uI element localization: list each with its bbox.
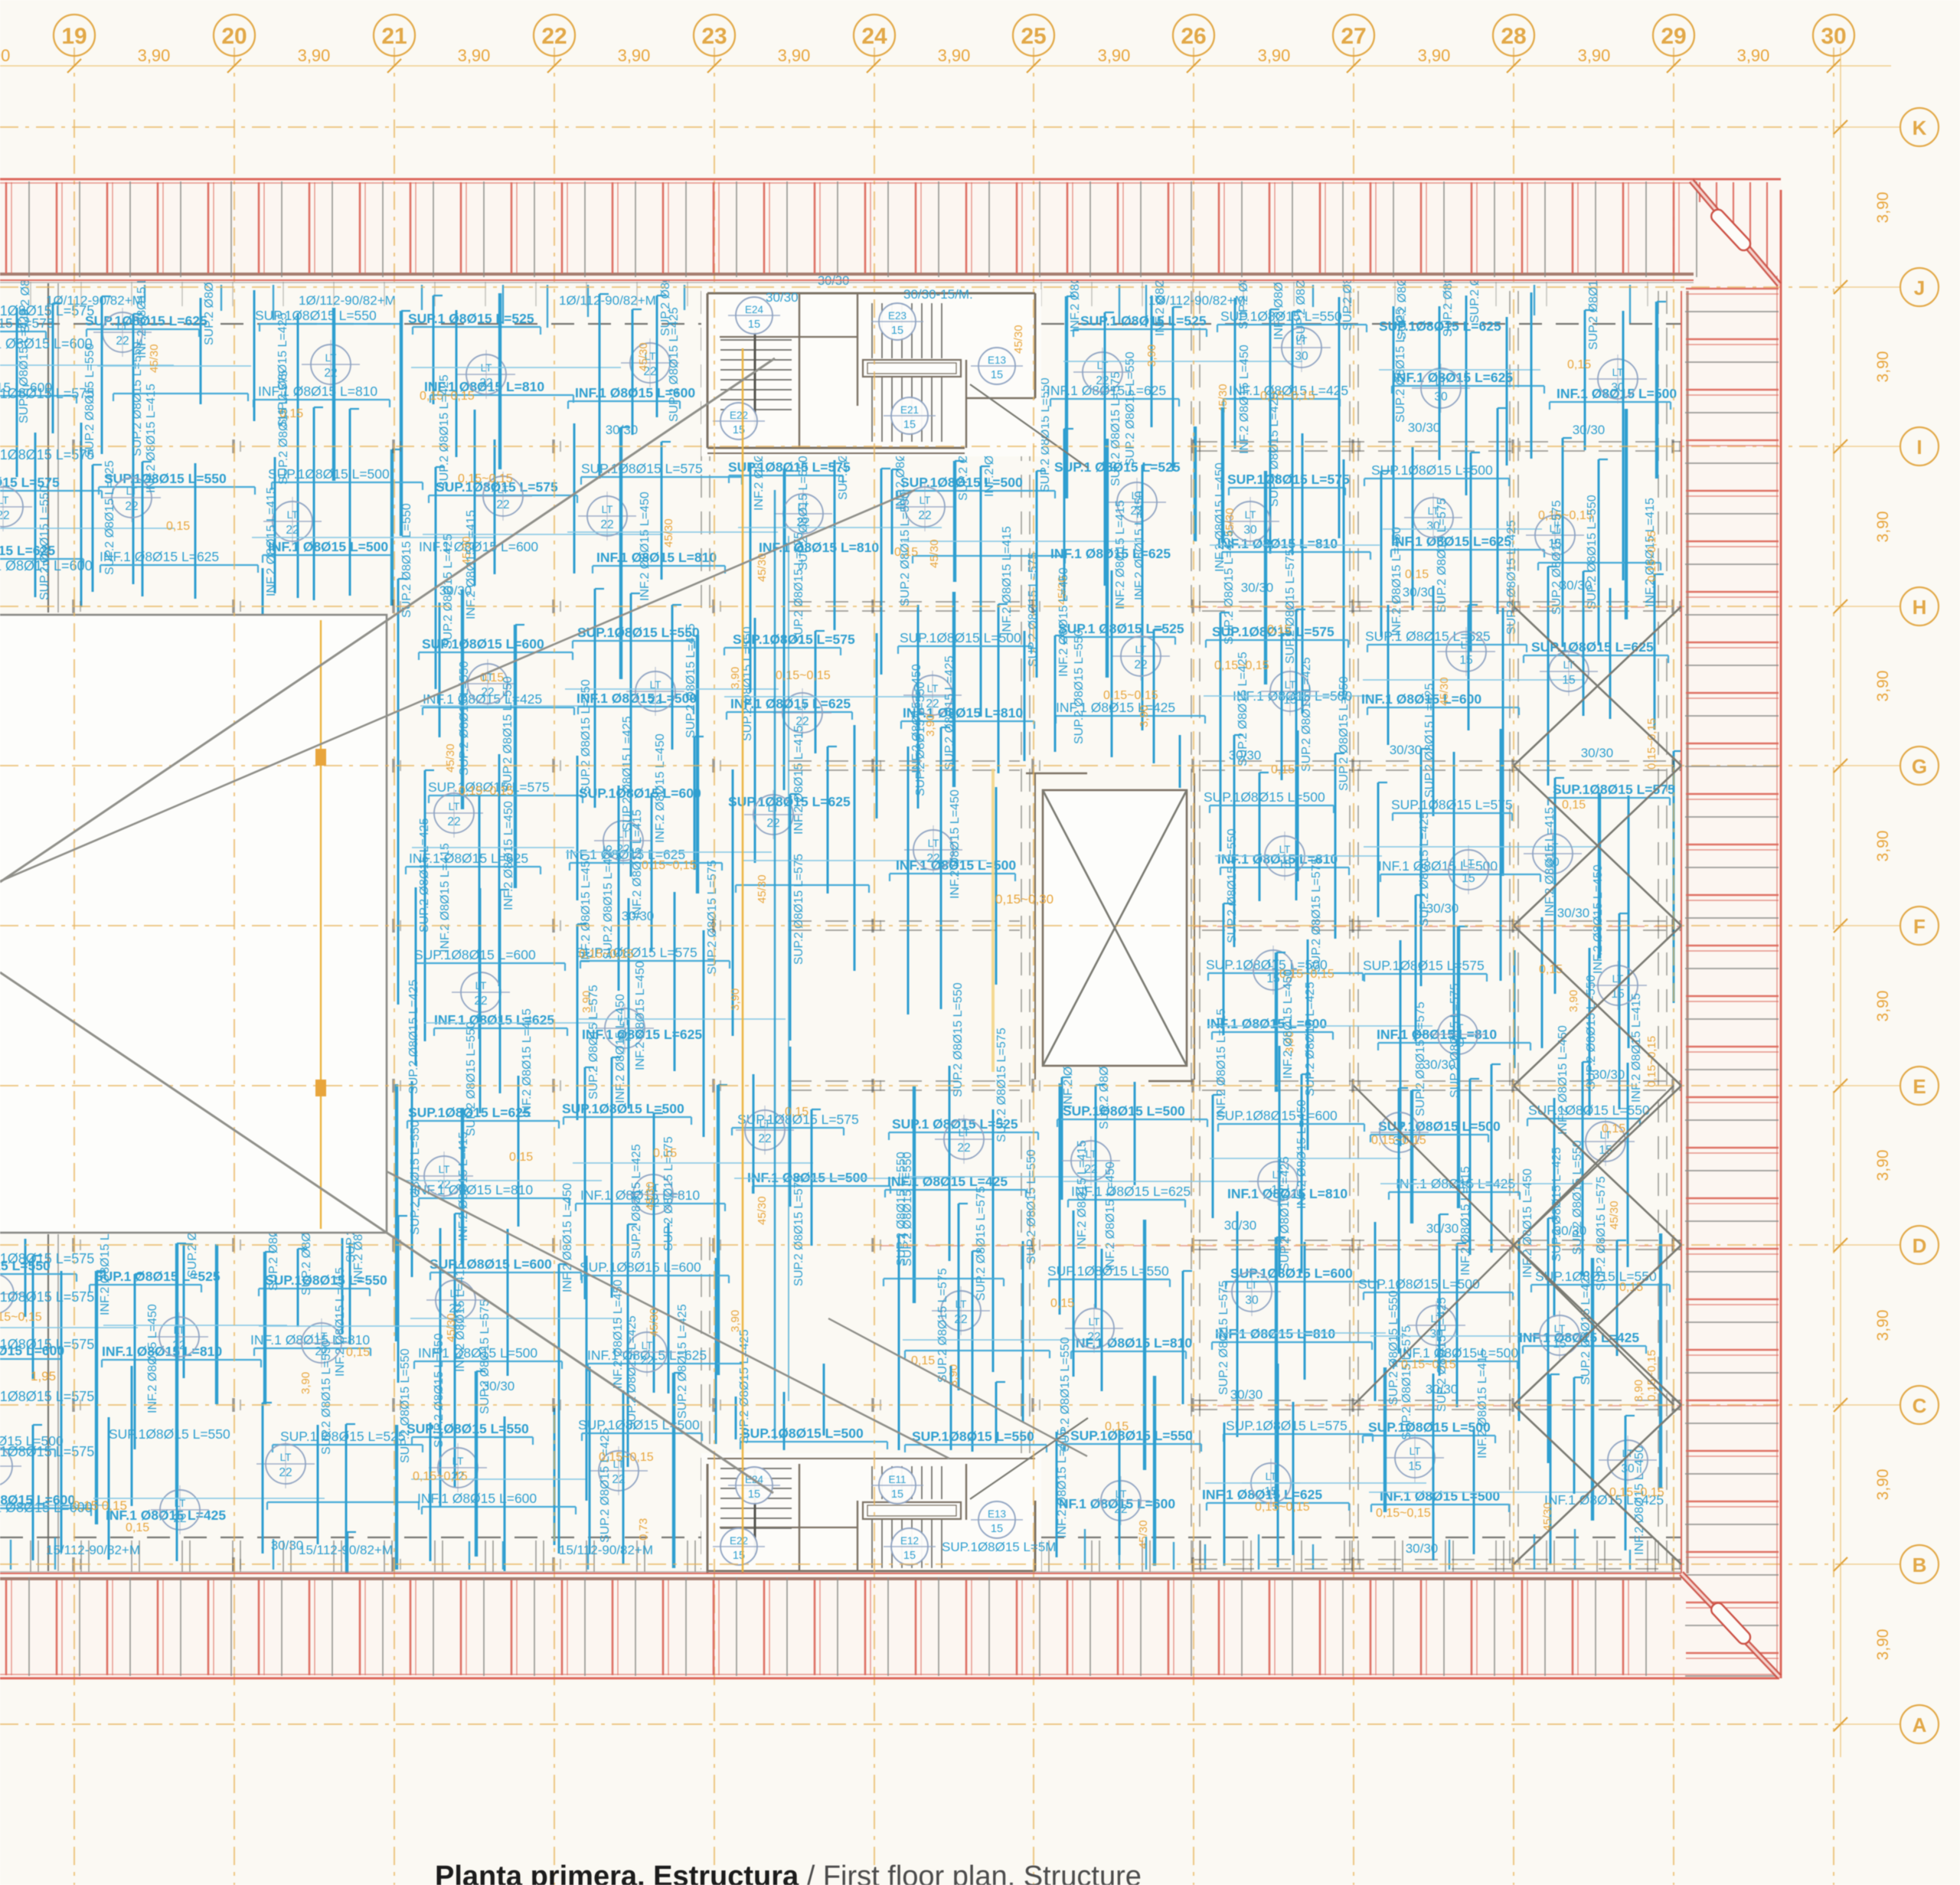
svg-text:LT: LT [1116,1488,1127,1500]
svg-text:INF.1 Ø8Ø15 L=810: INF.1 Ø8Ø15 L=810 [596,550,717,565]
svg-text:LT: LT [1089,1316,1100,1328]
svg-text:SUP.1Ø8Ø15 L=575: SUP.1Ø8Ø15 L=575 [0,1337,94,1352]
svg-text:22: 22 [447,815,460,828]
svg-text:SUP.2 Ø8Ø15 L=425: SUP.2 Ø8Ø15 L=425 [418,818,431,933]
svg-text:0,15~0,15: 0,15~0,15 [1645,1350,1658,1401]
svg-text:30: 30 [1295,350,1308,363]
svg-text:SUP.2 Ø8Ø15 L=550: SUP.2 Ø8Ø15 L=550 [580,679,593,794]
svg-text:SUP.2 Ø8Ø15 L=575: SUP.2 Ø8Ø15 L=575 [792,854,805,965]
svg-text:INF.1 Ø8Ø15 L=625: INF.1 Ø8Ø15 L=625 [1071,1184,1191,1199]
svg-text:SUP.2 Ø8Ø15 L=425: SUP.2 Ø8Ø15 L=425 [1268,392,1281,507]
svg-text:SUP.2 Ø8Ø15 L=425: SUP.2 Ø8Ø15 L=425 [599,1428,612,1543]
svg-text:0,15~0,15: 0,15~0,15 [1609,1486,1664,1499]
svg-text:30: 30 [1245,1294,1259,1307]
svg-text:0,15~0,15: 0,15~0,15 [413,1470,468,1483]
svg-text:0,15: 0,15 [346,1346,370,1359]
svg-text:SUP.2 Ø8Ø15 L=425: SUP.2 Ø8Ø15 L=425 [442,534,455,648]
svg-text:22: 22 [954,1313,967,1326]
svg-text:22: 22 [648,694,661,707]
svg-text:LT: LT [959,1127,970,1139]
svg-text:SUP.1Ø8Ø15 L=575: SUP.1Ø8Ø15 L=575 [0,386,94,401]
svg-text:INF.2 Ø8Ø15 L=450: INF.2 Ø8Ø15 L=450 [1104,1161,1117,1271]
svg-text:15/112-90/82+M: 15/112-90/82+M [299,1543,393,1557]
svg-text:SUP.2 Ø8Ø15 L=550: SUP.2 Ø8Ø15 L=550 [1338,676,1351,791]
svg-text:SUP.1Ø8Ø15 L=500: SUP.1Ø8Ø15 L=500 [1358,1276,1480,1292]
svg-text:45/30: 45/30 [1438,677,1451,706]
svg-text:15: 15 [1459,654,1472,667]
svg-text:SUP.1Ø8Ø15 L=550: SUP.1Ø8Ø15 L=550 [407,1421,529,1436]
svg-text:0,15: 0,15 [1567,358,1591,371]
svg-text:15/112-90/82+M: 15/112-90/82+M [559,1543,653,1557]
svg-text:30/30: 30/30 [1426,901,1459,916]
svg-text:3,90: 3,90 [1874,351,1892,383]
svg-text:1,95: 1,95 [31,1369,56,1384]
svg-text:SUP.2 Ø8Ø15 L=575: SUP.2 Ø8Ø15 L=575 [792,532,805,643]
svg-text:45/30: 45/30 [928,539,941,568]
svg-text:15: 15 [903,1550,916,1562]
svg-text:INF.2 Ø8Ø15 L=415: INF.2 Ø8Ø15 L=415 [792,725,805,835]
svg-text:INF.2 Ø8Ø15 L=450: INF.2 Ø8Ø15 L=450 [1238,345,1251,454]
svg-text:INF.2 Ø8Ø15 L=415: INF.2 Ø8Ø15 L=415 [439,843,452,952]
svg-text:SUP.2 Ø8Ø15 L=575: SUP.2 Ø8Ø15 L=575 [1436,498,1449,613]
svg-text:SUP.2 Ø8Ø15 L=550: SUP.2 Ø8Ø15 L=550 [465,1021,478,1136]
svg-text:SUP.1Ø8Ø15 L=600: SUP.1Ø8Ø15 L=600 [580,1259,701,1275]
svg-text:22: 22 [1087,1331,1100,1344]
svg-text:SUP.1Ø8Ø15 L=575: SUP.1Ø8Ø15 L=575 [0,1289,94,1305]
svg-text:INF.2 Ø8Ø15 L=415: INF.2 Ø8Ø15 L=415 [457,1132,470,1241]
svg-text:SUP.2 Ø8Ø15 L=575: SUP.2 Ø8Ø15 L=575 [1414,1001,1427,1116]
svg-text:INF.1 Ø8Ø15 L=500: INF.1 Ø8Ø15 L=500 [1378,858,1498,874]
svg-text:C: C [1913,1394,1927,1417]
svg-text:22: 22 [172,1339,185,1352]
svg-text:SUP.2 Ø8Ø15 L=425: SUP.2 Ø8Ø15 L=425 [1436,1297,1449,1412]
svg-text:SUP.1Ø8Ø15 L=575: SUP.1Ø8Ø15 L=575 [1391,797,1513,812]
svg-text:30/30: 30/30 [1406,1541,1439,1556]
svg-text:SUP.2 Ø8Ø15 L=550: SUP.2 Ø8Ø15 L=550 [433,1333,446,1448]
svg-text:INF.2 Ø8Ø15 L=415: INF.2 Ø8Ø15 L=415 [1543,807,1557,916]
svg-text:INF.1 Ø8Ø15 L=625: INF.1 Ø8Ø15 L=625 [1391,534,1511,549]
svg-text:3,90: 3,90 [1874,991,1892,1022]
svg-text:E11: E11 [888,1474,906,1485]
svg-text:SUP.2 Ø8Ø15 L=425: SUP.2 Ø8Ø15 L=425 [1418,812,1431,926]
svg-text:SUP.2 Ø8Ø15 L=575: SUP.2 Ø8Ø15 L=575 [975,1186,988,1301]
svg-text:INF.2 Ø8Ø15 L=450: INF.2 Ø8Ø15 L=450 [614,994,627,1103]
svg-text:LT: LT [1245,509,1256,521]
svg-text:SUP.1 Ø8Ø15 L=525: SUP.1 Ø8Ø15 L=525 [280,1429,406,1444]
svg-text:30/30: 30/30 [1408,420,1441,435]
svg-text:LT: LT [1436,376,1447,387]
svg-text:30/30: 30/30 [1423,1057,1456,1072]
svg-text:0,15~0,15: 0,15~0,15 [1255,1501,1310,1514]
svg-text:22: 22 [957,1142,970,1155]
svg-text:SUP.1 Ø8Ø15 L=525: SUP.1 Ø8Ø15 L=525 [1080,313,1207,328]
svg-text:22: 22 [286,524,299,537]
svg-text:E23: E23 [888,310,906,322]
svg-text:INF.2 Ø8Ø15 L=415: INF.2 Ø8Ø15 L=415 [1001,526,1014,635]
svg-text:1Ø/112-90/82+M: 1Ø/112-90/82+M [1148,293,1246,308]
svg-text:LT: LT [280,1452,292,1463]
svg-text:SUP.2 Ø8Ø15 L=575: SUP.2 Ø8Ø15 L=575 [792,1175,805,1286]
svg-text:26: 26 [1181,24,1206,49]
svg-text:INF.2 Ø8Ø15 L=415: INF.2 Ø8Ø15 L=415 [334,1267,347,1377]
svg-text:0,15~0,15: 0,15~0,15 [1214,659,1269,672]
svg-text:22: 22 [926,697,939,711]
svg-text:E21: E21 [900,404,919,416]
svg-text:LT: LT [1612,367,1624,378]
svg-text:INF.2 Ø8Ø15 L=415: INF.2 Ø8Ø15 L=415 [265,487,278,596]
svg-text:LT: LT [642,1340,653,1351]
svg-text:INF.2 Ø8Ø15 L=450: INF.2 Ø8Ø15 L=450 [1057,567,1070,677]
svg-text:SUP.1Ø8Ø15 L=600: SUP.1Ø8Ø15 L=600 [1216,1108,1338,1123]
svg-text:3,90: 3,90 [1874,1310,1892,1341]
svg-text:LT: LT [287,509,299,521]
svg-text:30/30: 30/30 [766,290,799,305]
svg-text:K: K [1913,116,1927,139]
svg-text:SUP.2 Ø8Ø15 L=550: SUP.2 Ø8Ø15 L=550 [1124,351,1137,466]
svg-text:INF.1 Ø8Ø15 L=625: INF.1 Ø8Ø15 L=625 [1202,1487,1322,1502]
svg-text:20: 20 [221,24,247,49]
svg-text:SUP.2 Ø8Ø15 L=575: SUP.2 Ø8Ø15 L=575 [1310,858,1323,972]
svg-text:INF.1 Ø8Ø15 L=810: INF.1 Ø8Ø15 L=810 [250,1332,370,1348]
svg-text:3,90: 3,90 [729,667,742,689]
svg-text:15: 15 [1408,1460,1421,1473]
svg-text:INF.2 Ø8Ø15 L=450: INF.2 Ø8Ø15 L=450 [1633,1446,1646,1555]
svg-text:LT: LT [1279,844,1291,855]
svg-text:22: 22 [125,500,138,513]
svg-text:J: J [1914,276,1925,299]
svg-text:SUP.1Ø8Ø15 L=600: SUP.1Ø8Ø15 L=600 [430,1256,552,1272]
svg-text:E13: E13 [988,354,1006,366]
svg-text:3,90: 3,90 [1874,1629,1892,1661]
svg-text:3,90: 3,90 [778,46,811,65]
svg-text:25: 25 [1021,24,1046,49]
svg-text:45/30: 45/30 [148,344,161,373]
svg-text:3,90: 3,90 [458,46,491,65]
svg-text:SUP.1Ø8Ø15 L=575: SUP.1Ø8Ø15 L=575 [0,1251,94,1266]
svg-text:LT: LT [439,1164,450,1175]
svg-text:SUP.1Ø8Ø15 L=575: SUP.1Ø8Ø15 L=575 [0,1389,94,1404]
svg-text:F: F [1913,915,1926,938]
svg-text:INF.1 Ø8Ø15 L=600: INF.1 Ø8Ø15 L=600 [1361,691,1481,707]
svg-text:30/30: 30/30 [1573,423,1606,437]
svg-text:SUP.1Ø8Ø15 L=500: SUP.1Ø8Ø15 L=500 [741,1426,864,1441]
svg-text:LT: LT [768,802,779,814]
svg-text:SUP.2 Ø8Ø15 L=575: SUP.2 Ø8Ø15 L=575 [1109,371,1122,486]
svg-text:0,15~0,15: 0,15~0,15 [458,472,513,485]
svg-text:0,15: 0,15 [509,1151,533,1164]
svg-text:INF.1 Ø8Ø15 L=600: INF.1 Ø8Ø15 L=600 [0,558,93,573]
svg-text:INF.2 Ø8Ø15 L=450: INF.2 Ø8Ø15 L=450 [1282,969,1295,1079]
svg-text:SUP.2 Ø8Ø15 L=425: SUP.2 Ø8Ø15 L=425 [630,1144,643,1259]
svg-text:SUP.2 Ø8Ø15 L=425: SUP.2 Ø8Ø15 L=425 [668,307,681,422]
svg-text:INF.1 Ø8Ø15 L=625: INF.1 Ø8Ø15 L=625 [1050,546,1171,561]
svg-text:Planta primera, Estructura / F: Planta primera, Estructura / First floor… [435,1860,1142,1885]
svg-text:LT: LT [1554,1323,1566,1335]
svg-text:INF.2 Ø8Ø15 L=450: INF.2 Ø8Ø15 L=450 [639,492,652,601]
svg-text:SUP.1Ø8Ø15 L=500: SUP.1Ø8Ø15 L=500 [1063,1103,1185,1119]
svg-text:22: 22 [496,498,509,511]
svg-text:22: 22 [479,377,492,390]
svg-text:45/30: 45/30 [644,1181,657,1210]
svg-text:LT: LT [449,801,460,812]
svg-text:0,15 0,15: 0,15 0,15 [73,1498,127,1513]
svg-text:30/30: 30/30 [1224,1218,1257,1233]
svg-text:SUP.2 Ø8Ø15 L=575: SUP.2 Ø8Ø15 L=575 [1550,500,1563,615]
svg-text:0,15: 0,15 [1562,799,1586,812]
svg-text:SUP.2 Ø8Ø15 L=550: SUP.2 Ø8Ø15 L=550 [901,1152,914,1266]
svg-text:SUP.1Ø8Ø15 L=550: SUP.1Ø8Ø15 L=550 [265,1272,387,1288]
svg-text:SUP.2 Ø8Ø15 L=425: SUP.2 Ø8Ø15 L=425 [626,1315,639,1430]
svg-text:SUP.1Ø8Ø15 L=575: SUP.1Ø8Ø15 L=575 [1227,472,1350,487]
svg-text:24: 24 [861,24,887,49]
svg-text:SUP.2 Ø8Ø15 L=425: SUP.2 Ø8Ø15 L=425 [18,309,31,423]
svg-text:3,90: 3,90 [618,46,651,65]
svg-text:SUP.2 Ø8Ø15 L=425: SUP.2 Ø8Ø15 L=425 [103,460,116,575]
svg-text:INF.1 Ø8Ø15 L=500: INF.1 Ø8Ø15 L=500 [1380,1488,1500,1504]
svg-text:30: 30 [1243,524,1257,537]
svg-text:22: 22 [0,509,10,522]
svg-text:INF.2 Ø8Ø15 L=450: INF.2 Ø8Ø15 L=450 [561,1183,574,1292]
svg-text:SUP.2 Ø8Ø15 L=550: SUP.2 Ø8Ø15 L=550 [131,341,144,456]
svg-text:INF.2 Ø8Ø15 L=415: INF.2 Ø8Ø15 L=415 [1114,500,1127,609]
svg-text:3,90: 3,90 [0,46,10,65]
svg-text:SUP.2 Ø8Ø15 L=550: SUP.2 Ø8Ø15 L=550 [1586,495,1599,609]
svg-text:0,15~0,15: 0,15~0,15 [1538,509,1593,522]
svg-text:0,15: 0,15 [1105,1420,1129,1433]
svg-text:LT: LT [1461,639,1472,651]
svg-text:SUP.2 Ø8Ø15 L=550: SUP.2 Ø8Ø15 L=550 [1387,1290,1400,1405]
svg-text:15: 15 [891,1488,903,1501]
svg-text:30/30: 30/30 [1390,743,1423,757]
svg-text:E22: E22 [730,1535,748,1547]
svg-text:INF.1 Ø8Ø15 L=625: INF.1 Ø8Ø15 L=625 [100,549,219,564]
svg-text:45/30: 45/30 [637,342,650,371]
svg-text:0,15~0,15: 0,15~0,15 [0,1311,42,1324]
svg-text:SUP.2 Ø8Ø15 L=575: SUP.2 Ø8Ø15 L=575 [587,985,600,1099]
svg-text:LT: LT [797,701,808,712]
svg-text:22: 22 [279,1466,292,1479]
svg-text:SUP.1Ø8Ø15 L=575: SUP.1Ø8Ø15 L=575 [1226,1418,1347,1433]
svg-text:INF.2 Ø8Ø15 L=415: INF.2 Ø8Ø15 L=415 [631,809,644,919]
svg-text:45/30: 45/30 [648,1308,661,1337]
svg-text:15: 15 [1278,858,1291,871]
svg-text:0,15: 0,15 [911,1354,935,1367]
svg-text:INF.2 Ø8Ø15 L=450: INF.2 Ø8Ø15 L=450 [654,733,667,843]
svg-text:3,90: 3,90 [1874,671,1892,702]
svg-text:22: 22 [640,1354,653,1367]
svg-text:15: 15 [991,369,1003,381]
svg-text:SUP.2 Ø8Ø15 L=550: SUP.2 Ø8Ø15 L=550 [400,503,413,618]
svg-text:0,15: 0,15 [1405,568,1429,581]
svg-text:3,90: 3,90 [1874,1469,1892,1501]
svg-text:3,90: 3,90 [1874,192,1892,224]
svg-text:INF.2 Ø8Ø15 L=415: INF.2 Ø8Ø15 L=415 [1476,1349,1489,1459]
svg-text:D: D [1913,1234,1927,1257]
svg-text:22: 22 [918,509,931,522]
svg-text:SUP.1Ø8Ø15 L=575: SUP.1Ø8Ø15 L=575 [0,447,94,462]
svg-text:LT: LT [126,485,138,497]
svg-text:3,90: 3,90 [1874,1150,1892,1181]
svg-text:22: 22 [116,335,129,348]
svg-text:30/30: 30/30 [1557,906,1590,920]
svg-text:LT: LT [1246,1279,1258,1291]
svg-text:30/30: 30/30 [1403,585,1436,599]
svg-text:0,15: 0,15 [653,1147,677,1160]
svg-text:LT: LT [0,495,8,506]
svg-text:15: 15 [748,1488,760,1501]
svg-text:SUP.1Ø8Ø15 L=5M: SUP.1Ø8Ø15 L=5M [942,1540,1056,1554]
svg-text:SUP.2 Ø8Ø15 L=425: SUP.2 Ø8Ø15 L=425 [943,655,956,770]
svg-text:SUP.2 Ø8Ø15 L=425: SUP.2 Ø8Ø15 L=425 [1304,982,1317,1096]
svg-text:0,15: 0,15 [1267,623,1291,636]
svg-text:INF.2 Ø8Ø15 L=415: INF.2 Ø8Ø15 L=415 [521,1008,534,1118]
svg-text:SUP.1Ø8Ø15 L=575: SUP.1Ø8Ø15 L=575 [728,459,851,475]
svg-text:22: 22 [766,817,779,830]
svg-text:0,15: 0,15 [126,1521,149,1534]
svg-text:0,15: 0,15 [1602,1122,1625,1135]
svg-text:SUP.2 Ø8Ø15 L=575: SUP.2 Ø8Ø15 L=575 [1595,1176,1608,1291]
svg-text:INF.2 Ø8Ø15 L=450: INF.2 Ø8Ø15 L=450 [146,1304,159,1413]
svg-text:SUP.2 Ø8Ø15 L=425: SUP.2 Ø8Ø15 L=425 [1579,1270,1592,1385]
svg-text:15: 15 [1553,1338,1566,1351]
svg-text:INF.2 Ø8Ø15 L=450: INF.2 Ø8Ø15 L=450 [634,961,647,1070]
svg-text:SUP.2 Ø8Ø15 L=425: SUP.2 Ø8Ø15 L=425 [407,979,420,1094]
svg-text:19: 19 [61,24,87,49]
svg-text:A: A [1913,1713,1927,1736]
svg-text:LT: LT [1410,1446,1421,1457]
svg-text:3,90: 3,90 [1567,990,1580,1012]
svg-text:45/30: 45/30 [1608,1201,1621,1230]
svg-text:SUP.2 Ø8Ø15 L=550: SUP.2 Ø8Ø15 L=550 [1585,975,1598,1090]
svg-text:22: 22 [173,1512,186,1525]
svg-text:45/30: 45/30 [445,1313,458,1342]
svg-text:0,15~0,15: 0,15~0,15 [1371,1134,1426,1147]
svg-text:SUP.1 Ø8Ø15 L=525: SUP.1 Ø8Ø15 L=525 [408,311,534,326]
svg-text:0,15~0,15: 0,15~0,15 [642,859,697,872]
svg-text:SUP.2 Ø8Ø15 L=575: SUP.2 Ø8Ø15 L=575 [277,370,290,485]
svg-text:SUP.2 Ø8Ø15 L=575: SUP.2 Ø8Ø15 L=575 [706,860,719,975]
svg-text:SUP.2 Ø8Ø15 L=550: SUP.2 Ø8Ø15 L=550 [952,982,965,1097]
svg-text:30: 30 [1434,390,1448,403]
svg-text:1Ø/112-90/82+M: 1Ø/112-90/82+M [559,293,656,308]
svg-text:30/30: 30/30 [1581,746,1614,760]
svg-text:INF.2 Ø8Ø15 L=450: INF.2 Ø8Ø15 L=450 [1295,1099,1308,1209]
svg-text:27: 27 [1341,24,1366,49]
svg-text:3,90: 3,90 [938,46,971,65]
svg-text:3,90: 3,90 [299,1372,312,1394]
svg-text:0,15: 0,15 [1050,1297,1074,1310]
svg-text:22: 22 [926,852,939,865]
svg-text:LT: LT [927,683,939,694]
svg-text:0,15~0,15: 0,15~0,15 [579,948,634,961]
svg-text:0,15~0,15: 0,15~0,15 [1645,531,1658,582]
svg-text:45/30: 45/30 [756,874,769,903]
svg-text:22: 22 [1114,1503,1127,1516]
svg-text:LT: LT [1463,858,1475,869]
svg-text:E22: E22 [730,410,748,421]
svg-text:SUP.1Ø8Ø15 L=550: SUP.1Ø8Ø15 L=550 [104,471,227,486]
svg-text:0,15~0,15: 0,15~0,15 [1103,689,1158,702]
svg-text:SUP.1Ø8Ø15 L=500: SUP.1Ø8Ø15 L=500 [1204,789,1325,805]
svg-text:SUP.1Ø8Ø15 L=550: SUP.1Ø8Ø15 L=550 [109,1426,230,1442]
svg-text:INF.2 Ø8Ø15 L=450: INF.2 Ø8Ø15 L=450 [612,1279,625,1389]
svg-text:0,15: 0,15 [166,520,190,533]
svg-text:3,90: 3,90 [1145,345,1158,367]
svg-text:INF.2 Ø8Ø15 L=450: INF.2 Ø8Ø15 L=450 [949,789,962,899]
svg-text:SUP.2 Ø8Ø15 L=425: SUP.2 Ø8Ø15 L=425 [1423,683,1436,798]
svg-text:LT: LT [955,1299,967,1310]
svg-text:15: 15 [891,325,903,337]
svg-text:SUP.2 Ø8Ø15 L=425: SUP.2 Ø8Ø15 L=425 [1279,1156,1292,1271]
svg-text:INF.2 Ø8Ø15 L=415: INF.2 Ø8Ø15 L=415 [1215,1008,1228,1118]
svg-text:SUP.2 Ø8Ø15 L=550: SUP.2 Ø8Ø15 L=550 [458,661,471,776]
svg-text:22: 22 [541,24,567,49]
svg-text:1Ø/112-90/82+M: 1Ø/112-90/82+M [299,293,396,308]
svg-text:LT: LT [1266,1471,1277,1482]
svg-text:22: 22 [758,1132,771,1145]
svg-text:B: B [1913,1553,1927,1576]
svg-text:3,90: 3,90 [1874,511,1892,543]
svg-text:INF.2 Ø8Ø15 L=450: INF.2 Ø8Ø15 L=450 [910,664,923,773]
svg-text:INF.1 Ø8Ø15 L=625: INF.1 Ø8Ø15 L=625 [434,1012,554,1027]
svg-text:LT: LT [1622,1448,1634,1459]
svg-text:0,15~0,15: 0,15~0,15 [599,1451,654,1464]
svg-text:SUP.1Ø8Ø15 L=600: SUP.1Ø8Ø15 L=600 [579,786,701,801]
svg-text:15: 15 [748,319,760,331]
svg-text:LT: LT [602,504,613,515]
svg-text:3,90: 3,90 [1418,46,1451,65]
svg-text:0,15: 0,15 [894,546,918,559]
svg-text:SUP.2 Ø8Ø15 L=425: SUP.2 Ø8Ø15 L=425 [1394,308,1407,423]
svg-text:3,90: 3,90 [298,46,331,65]
svg-text:INF.1 Ø8Ø15 L=810: INF.1 Ø8Ø15 L=810 [759,540,879,555]
svg-text:SUP.2 Ø8Ø15 L=425: SUP.2 Ø8Ø15 L=425 [738,1329,751,1444]
svg-text:1Ø/112-90/82+M: 1Ø/112-90/82+M [46,293,143,308]
svg-text:LT: LT [928,838,939,849]
svg-text:INF.2 Ø8Ø15 L=450: INF.2 Ø8Ø15 L=450 [502,801,515,910]
svg-text:15: 15 [991,1523,1003,1535]
svg-text:INF.2 Ø8Ø15 L=415: INF.2 Ø8Ø15 L=415 [145,384,158,493]
svg-text:45/30: 45/30 [444,743,457,773]
svg-text:3,90: 3,90 [1632,1380,1645,1402]
svg-text:LT: LT [452,1455,464,1467]
svg-text:0,15~0,15: 0,15~0,15 [459,785,514,798]
svg-text:INF.1 Ø8Ø15 L=500: INF.1 Ø8Ø15 L=500 [268,539,388,554]
svg-text:22: 22 [1096,374,1109,387]
svg-text:0,73: 0,73 [637,1518,650,1540]
svg-text:SUP.2 Ø8Ø15 L=425: SUP.2 Ø8Ø15 L=425 [602,844,615,959]
svg-text:45/30: 45/30 [1012,325,1025,354]
svg-text:3,90: 3,90 [1258,46,1291,65]
svg-text:LT: LT [117,320,129,332]
svg-text:SUP.1Ø8Ø15 L=550: SUP.1Ø8Ø15 L=550 [912,1429,1034,1444]
svg-text:SUP.2 Ø8Ø15 L=550: SUP.2 Ø8Ø15 L=550 [501,676,514,791]
svg-text:30/30: 30/30 [1230,1387,1263,1402]
svg-text:45/30: 45/30 [756,1196,769,1225]
svg-text:SUP.2 Ø8Ø15 L=425: SUP.2 Ø8Ø15 L=425 [438,374,451,489]
svg-text:SUP.1 Ø8Ø15 L=525: SUP.1 Ø8Ø15 L=525 [94,1269,220,1284]
svg-text:SUP.1Ø8Ø15 L=575: SUP.1Ø8Ø15 L=575 [581,461,703,476]
svg-text:0,15~0,15: 0,15~0,15 [1645,718,1658,769]
svg-text:3,90: 3,90 [729,988,742,1011]
svg-text:INF.1 Ø8Ø15 L=600: INF.1 Ø8Ø15 L=600 [0,336,93,351]
svg-text:30/30-15/M.: 30/30-15/M. [903,287,973,302]
svg-text:15: 15 [903,419,916,431]
svg-text:LT: LT [920,495,931,506]
svg-text:LT: LT [759,1118,771,1129]
svg-text:15: 15 [1264,1485,1277,1498]
svg-text:3,90: 3,90 [729,1310,742,1332]
